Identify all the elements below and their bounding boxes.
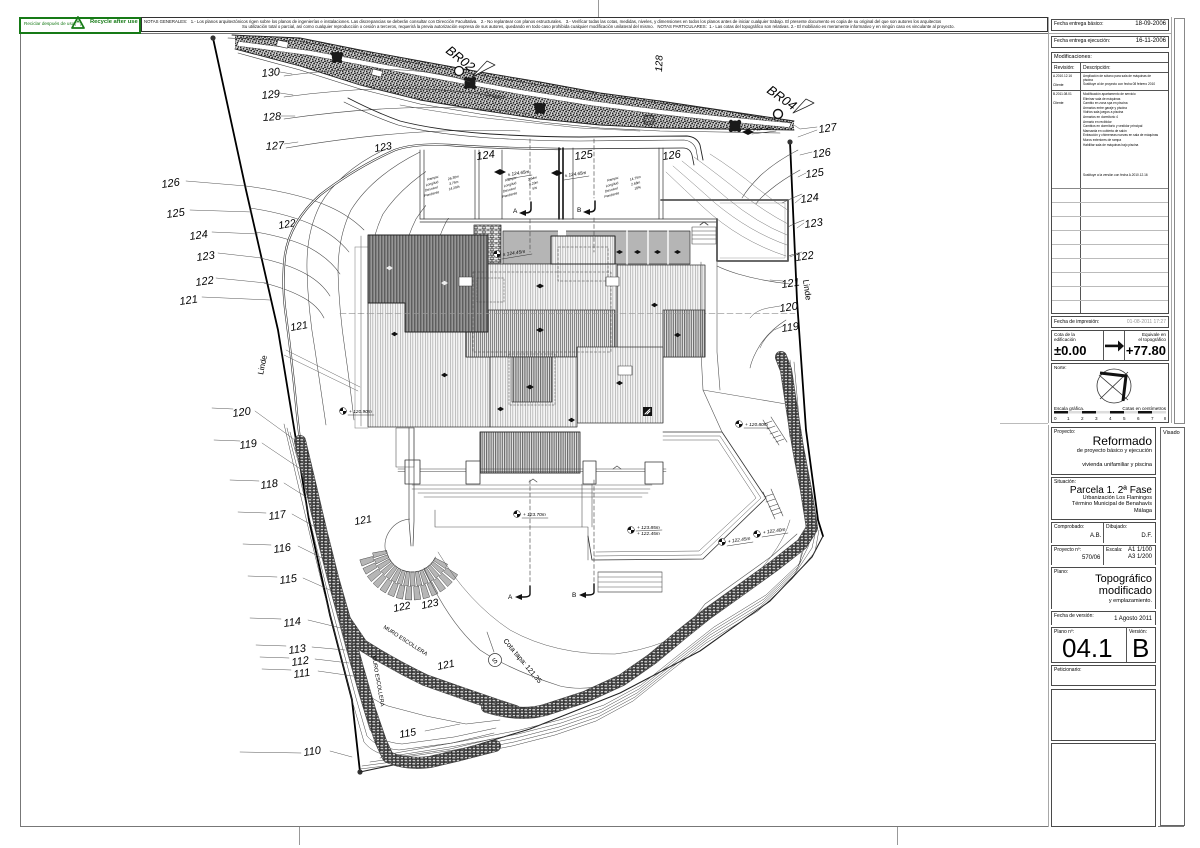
svg-text:Cota tapa: 121,35: Cota tapa: 121,35 [501, 638, 542, 685]
svg-text:1: 1 [1067, 416, 1070, 421]
svg-text:115: 115 [398, 726, 417, 741]
svg-text:114: 114 [283, 616, 302, 630]
svg-text:123: 123 [804, 216, 825, 231]
svg-text:120: 120 [779, 300, 800, 315]
svg-text:126: 126 [812, 146, 833, 161]
svg-text:111: 111 [293, 667, 311, 681]
svg-text:126: 126 [161, 176, 182, 191]
svg-text:4: 4 [1109, 416, 1112, 421]
svg-text:119: 119 [239, 438, 258, 452]
svg-text:127: 127 [265, 140, 285, 153]
svg-text:0: 0 [1054, 416, 1057, 421]
svg-text:128: 128 [654, 55, 666, 72]
svg-text:130: 130 [261, 66, 281, 80]
svg-text:123: 123 [420, 597, 440, 612]
svg-text:126: 126 [662, 148, 683, 163]
svg-text:BR04: BR04 [764, 82, 799, 113]
svg-text:± 127.50m: ± 127.50m [753, 125, 774, 132]
svg-text:121: 121 [179, 294, 199, 308]
svg-text:125: 125 [805, 166, 826, 181]
svg-text:B: B [577, 207, 581, 214]
svg-text:117: 117 [268, 509, 288, 523]
svg-text:121: 121 [353, 513, 372, 528]
svg-text:7: 7 [1151, 416, 1154, 421]
svg-text:128: 128 [262, 111, 282, 124]
svg-text:6: 6 [1137, 416, 1140, 421]
svg-text:A: A [513, 208, 518, 215]
svg-text:3: 3 [1095, 416, 1098, 421]
svg-text:+ 123.70m: + 123.70m [523, 512, 546, 518]
svg-text:119: 119 [781, 321, 800, 335]
svg-text:118: 118 [260, 478, 280, 492]
svg-text:122: 122 [392, 600, 412, 615]
svg-text:115: 115 [279, 573, 299, 587]
svg-text:129: 129 [261, 88, 281, 102]
svg-text:+ 122.40m: + 122.40m [762, 527, 785, 536]
svg-text:5: 5 [1123, 416, 1126, 421]
svg-text:+ 122.45m: + 122.45m [637, 531, 660, 537]
svg-text:121: 121 [781, 277, 801, 291]
svg-text:124: 124 [189, 229, 209, 243]
svg-text:2: 2 [1081, 416, 1084, 421]
svg-text:B: B [572, 592, 576, 599]
svg-text:122: 122 [195, 275, 215, 289]
svg-text:124: 124 [800, 192, 820, 206]
svg-text:122: 122 [795, 250, 815, 264]
svg-text:A: A [508, 594, 513, 601]
svg-text:120: 120 [232, 405, 253, 420]
svg-text:123: 123 [196, 249, 217, 264]
svg-text:+ 122.45m: + 122.45m [727, 536, 750, 545]
svg-text:+ 120.80m: + 120.80m [745, 422, 768, 428]
svg-text:121: 121 [436, 658, 456, 673]
svg-text:125: 125 [166, 206, 187, 221]
svg-text:+ 120.90m: + 120.90m [349, 409, 372, 415]
svg-text:127: 127 [818, 121, 839, 136]
svg-text:Linde: Linde [256, 354, 269, 376]
svg-text:124: 124 [476, 149, 496, 163]
svg-text:110: 110 [303, 745, 323, 759]
svg-text:8: 8 [1164, 416, 1166, 421]
svg-text:Linde: Linde [801, 279, 814, 301]
svg-text:MURO ESCOLLERA: MURO ESCOLLERA [382, 625, 429, 658]
svg-text:116: 116 [273, 542, 293, 556]
svg-text:121: 121 [289, 319, 308, 334]
